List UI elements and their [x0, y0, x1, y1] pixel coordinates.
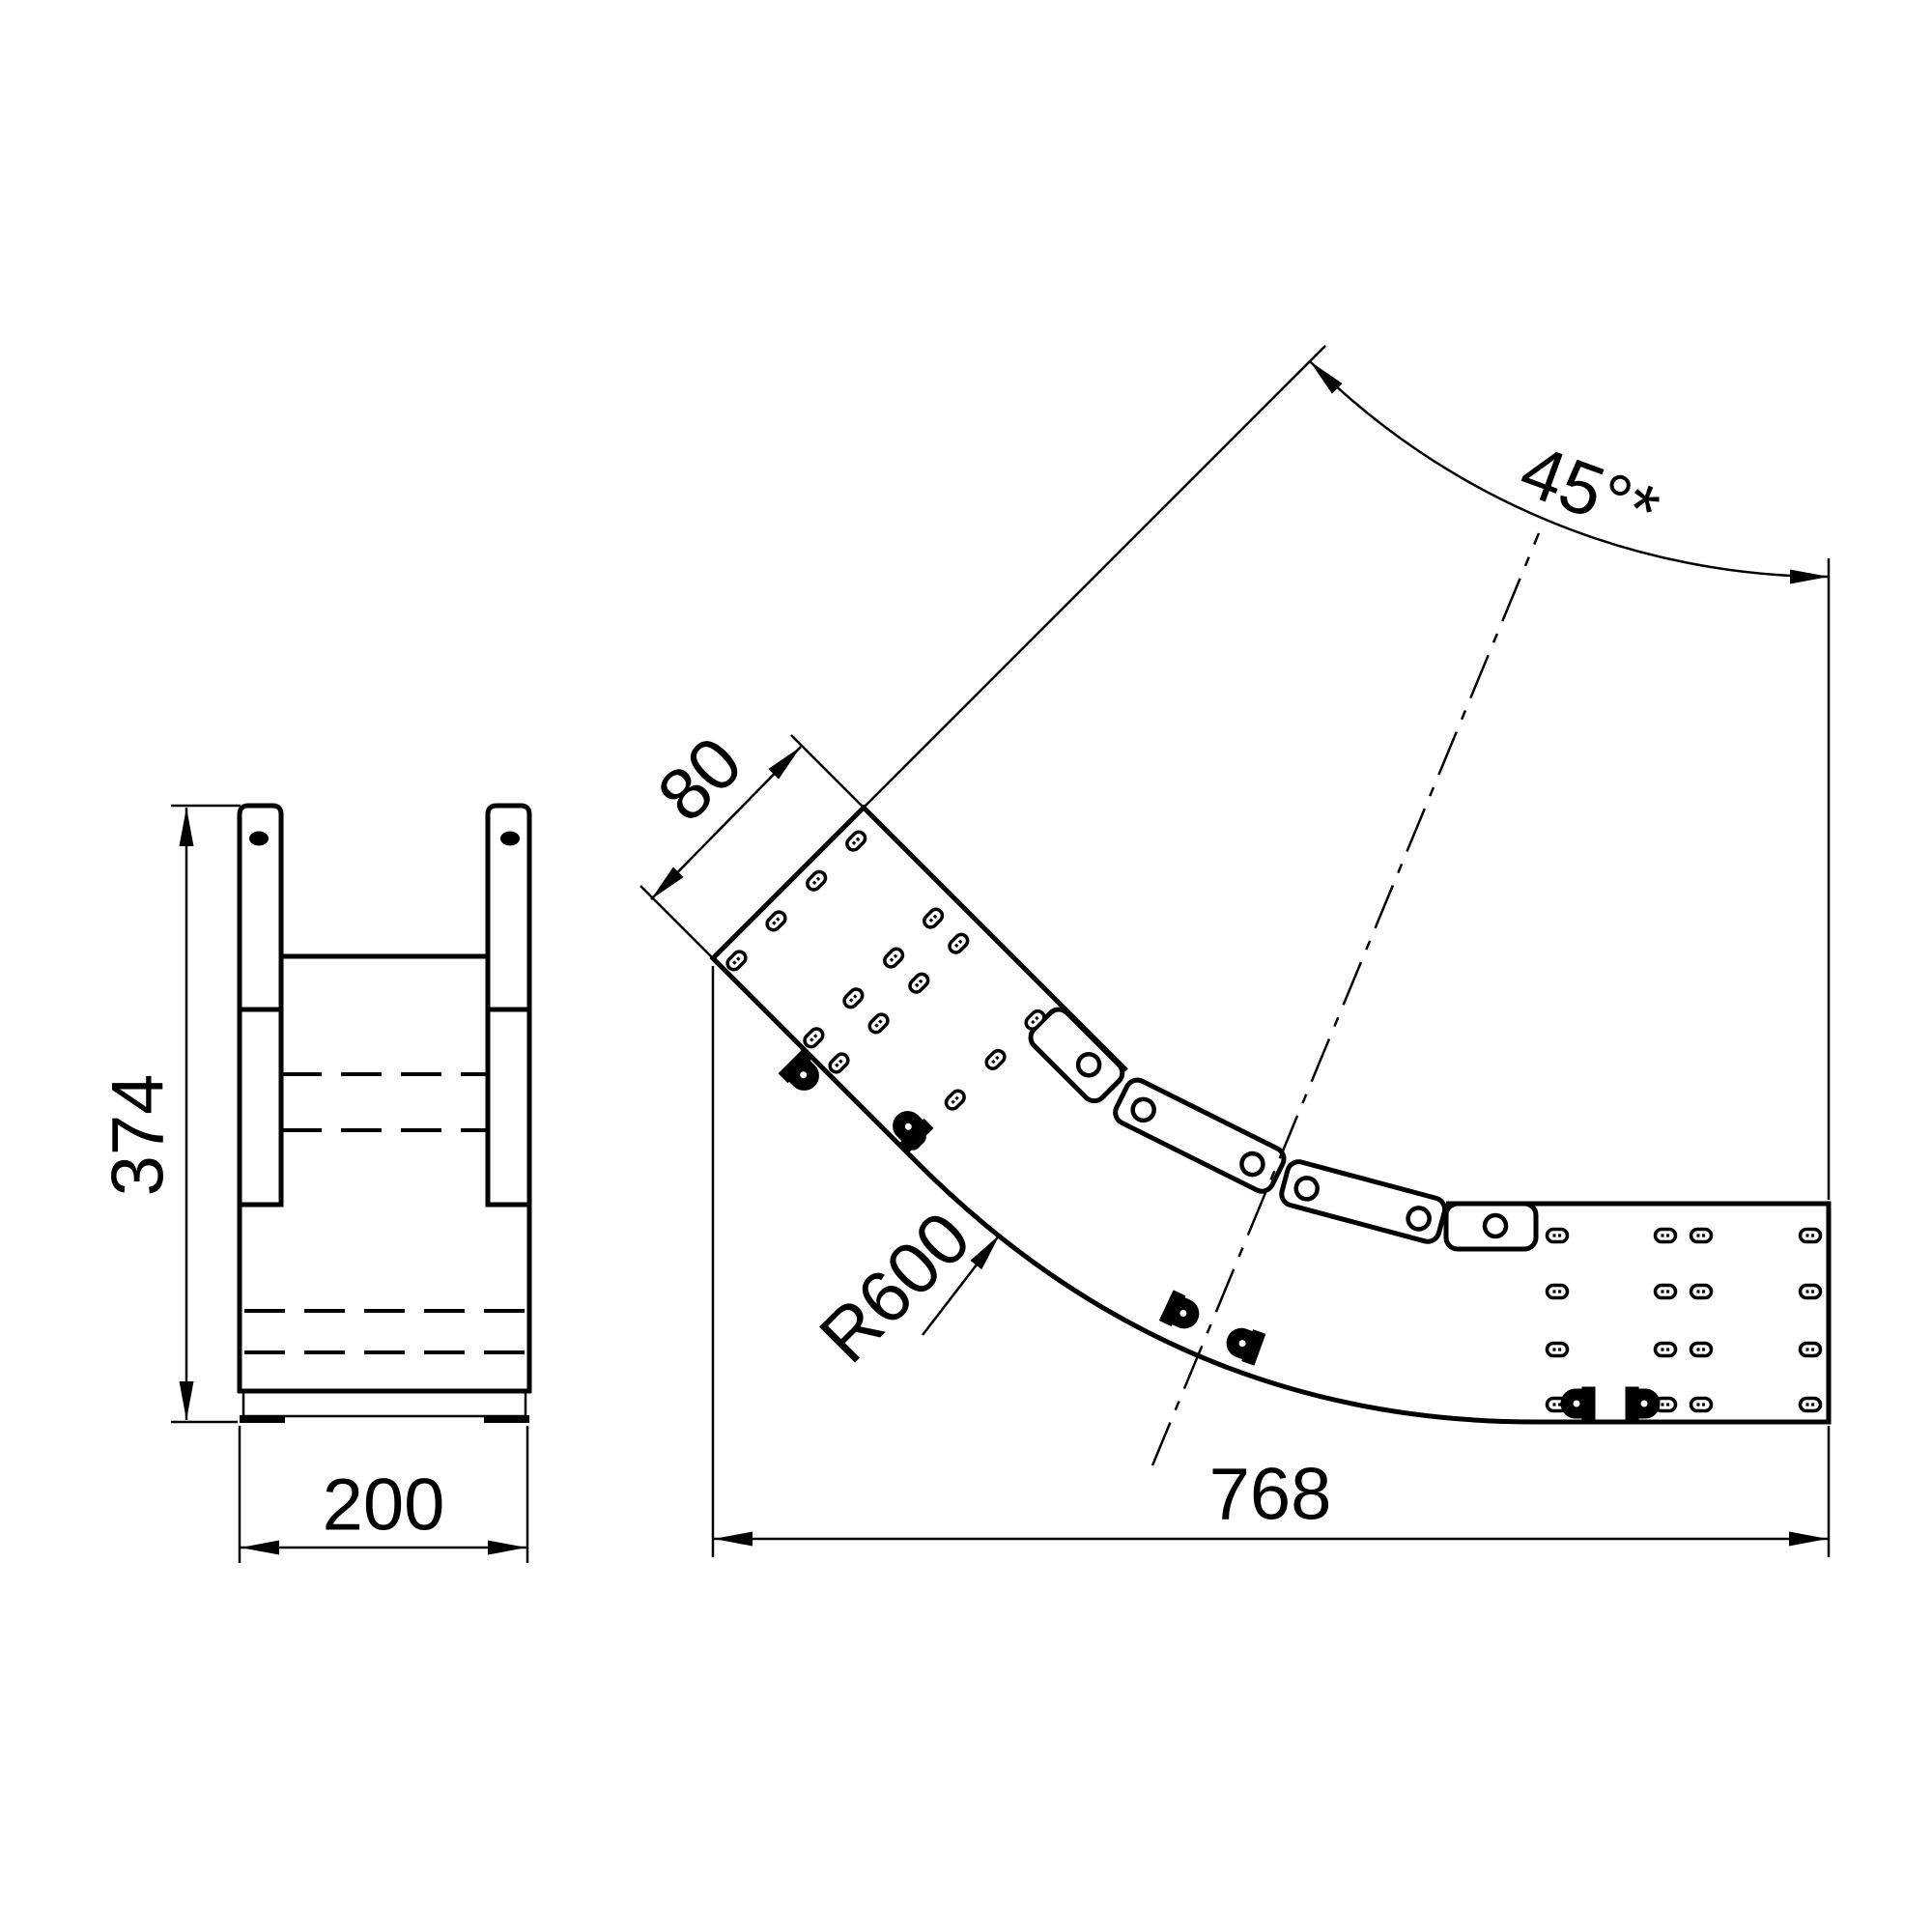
perforation-slot: [1548, 1230, 1568, 1242]
perforation-slot: [1801, 1230, 1821, 1242]
arrow: [714, 1532, 753, 1547]
ext-line: [640, 886, 713, 958]
technical-drawing-page: 374 200 80 R600 45°* 768: [0, 0, 1932, 1932]
perforation-slot: [844, 830, 867, 853]
perforation-slot: [1801, 1344, 1821, 1356]
clamp-fitting: [1563, 1389, 1593, 1418]
right-post-hole: [500, 832, 520, 846]
perforation-slot: [1691, 1286, 1712, 1298]
dim-length-label: 768: [1209, 1454, 1332, 1536]
perforation-slot: [1691, 1344, 1712, 1356]
perforation-slot: [882, 947, 905, 970]
perforation-slot: [724, 949, 748, 972]
arrow: [768, 742, 806, 780]
clamp-fitting: [1225, 1325, 1263, 1363]
arrow: [241, 1541, 279, 1555]
ext-line-end-edge: [864, 346, 1325, 808]
perforation-slot: [1801, 1286, 1821, 1298]
coupler-plate-0: [1446, 1204, 1536, 1249]
dim-height-label: 374: [98, 1074, 180, 1197]
perforation-slot: [1656, 1230, 1676, 1242]
clamp-fitting: [1628, 1389, 1658, 1418]
left-post-lower-plate: [240, 1009, 281, 1205]
perforation-slot: [827, 1051, 850, 1074]
arrow: [180, 808, 194, 846]
dim-flange-label: 80: [642, 722, 758, 838]
arrow: [488, 1541, 526, 1555]
ext-line: [791, 735, 864, 808]
perforation-slot: [1656, 1286, 1676, 1298]
arrow: [646, 867, 684, 904]
horizontal-slot-grid: [1548, 1230, 1821, 1411]
right-post-lower-plate: [488, 1009, 529, 1205]
left-post-hole: [249, 832, 269, 846]
arrow: [1789, 1532, 1828, 1547]
coupler-plate-15: [1279, 1159, 1447, 1244]
center-line: [1152, 533, 1539, 1465]
perforation-slot: [1548, 1344, 1568, 1356]
clamp-fitting: [1162, 1293, 1202, 1332]
perforation-slot: [1656, 1344, 1676, 1356]
arrow: [180, 1381, 194, 1420]
dimension-labels: 374 200 80 R600 45°* 768: [98, 429, 1669, 1546]
perforation-slot: [1691, 1230, 1712, 1242]
perforation-slot: [944, 1089, 967, 1112]
perforation-slot: [947, 932, 970, 955]
perforation-slot: [1023, 1009, 1046, 1032]
perforation-slot: [805, 869, 828, 893]
dim-width-label: 200: [323, 1464, 445, 1547]
perforation-slot: [841, 986, 865, 1009]
left-foot: [240, 1415, 285, 1423]
perforation-slot: [907, 972, 930, 995]
drawing-canvas: 374 200 80 R600 45°* 768: [0, 0, 1932, 1932]
perforation-slot: [1801, 1399, 1821, 1411]
perforation-slot: [867, 1011, 891, 1035]
perforation-slot: [1691, 1399, 1712, 1411]
arrow: [1790, 570, 1829, 584]
perforation-slot: [764, 909, 787, 932]
end-view: [238, 806, 531, 1423]
coupler-plate-30: [1112, 1076, 1289, 1195]
arrow: [1305, 356, 1343, 394]
right-foot: [484, 1415, 529, 1423]
perforation-slot: [983, 1048, 1007, 1071]
perforation-slot: [1548, 1286, 1568, 1298]
perforation-slot: [922, 907, 945, 930]
incline-slot-grid: [724, 830, 1046, 1151]
perforation-slot: [802, 1026, 825, 1049]
